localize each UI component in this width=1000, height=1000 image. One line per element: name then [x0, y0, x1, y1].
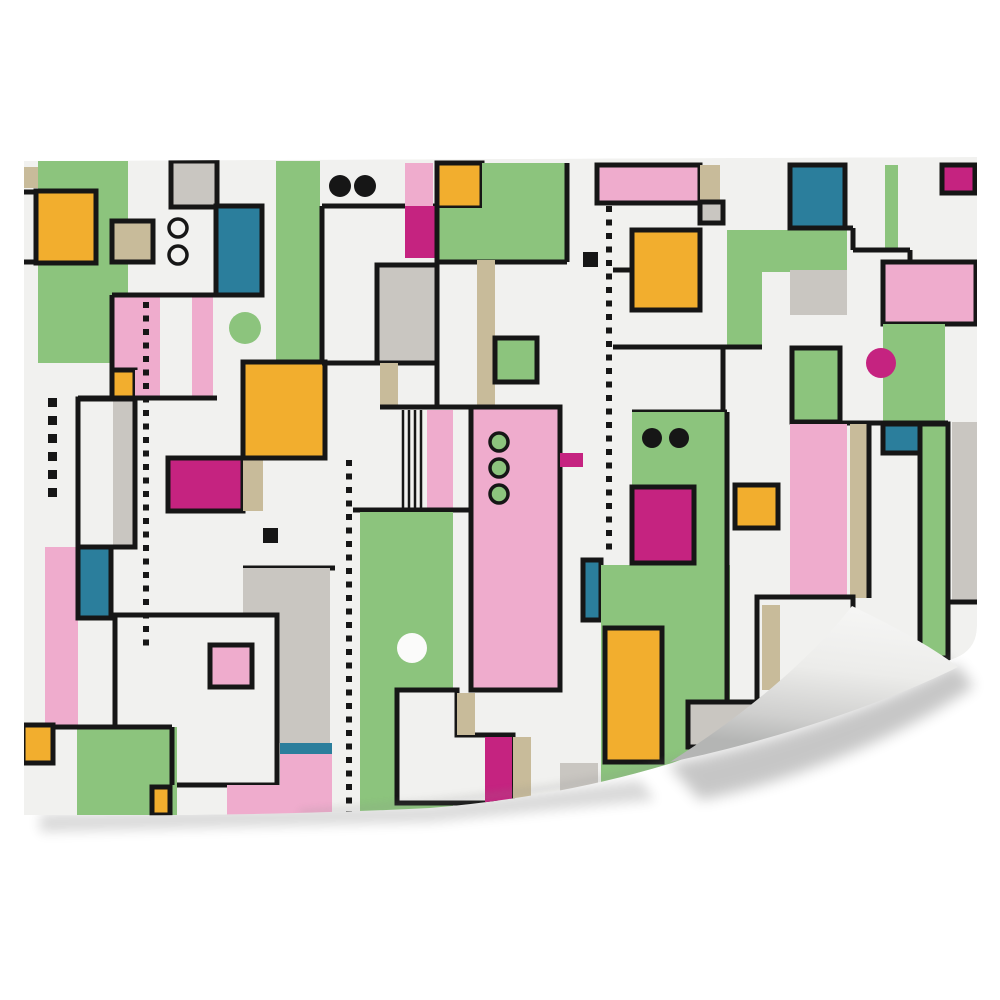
pattern-rect-orange	[23, 725, 53, 763]
pattern-circle-bg	[169, 246, 187, 264]
pattern-rect-pink	[427, 410, 453, 510]
pattern-rect-teal	[78, 547, 111, 618]
pattern-rect-gray	[171, 161, 217, 207]
pattern-rect-pink	[405, 163, 433, 206]
pattern-rect-magenta	[632, 487, 694, 563]
pattern-rect-orange	[437, 163, 482, 208]
pattern-rect-orange	[735, 485, 778, 528]
pattern-rect-tan	[850, 424, 867, 598]
pattern-rect-gray	[790, 270, 847, 315]
wallpaper-mockup-image	[0, 0, 1000, 1000]
pattern-black-square	[583, 252, 598, 267]
pattern-rect-gray	[952, 422, 977, 602]
pattern-rect-orange	[243, 362, 325, 458]
pattern-rect-tan	[457, 693, 475, 735]
pattern-circle-green	[490, 459, 508, 477]
pattern-rect-pink	[45, 547, 78, 727]
pattern-rect-tan	[477, 260, 495, 407]
pattern-rect-tan	[762, 605, 780, 690]
pattern-circle-black	[329, 175, 351, 197]
pattern-rect-teal	[883, 424, 922, 453]
pattern-black-square	[263, 528, 278, 543]
pattern-rect-gray	[113, 399, 135, 547]
pattern-rect-tan	[24, 167, 38, 188]
pattern-rect-gray	[700, 202, 723, 223]
pattern-rect-green	[727, 230, 847, 272]
pattern-rect-pink	[471, 407, 560, 690]
pattern-rect-teal	[280, 743, 332, 754]
pattern-rect-gray	[377, 265, 437, 363]
pattern-rect-pink	[790, 424, 847, 598]
pattern-rect-gray	[277, 615, 330, 743]
pattern-rect-magenta	[942, 165, 975, 193]
pattern-rect-tan	[112, 221, 153, 262]
pattern-rect-magenta	[560, 453, 583, 467]
pattern-circle-green	[490, 485, 508, 503]
pattern-rect-orange	[152, 787, 170, 815]
pattern-rect-green	[437, 208, 567, 262]
pattern-rect-pink	[210, 645, 252, 687]
pattern-rect-orange	[605, 628, 662, 762]
pattern-rect-tan	[380, 363, 398, 407]
pattern-circle-black	[642, 428, 662, 448]
pattern-rect-green	[920, 424, 948, 658]
pattern-circle-black	[669, 428, 689, 448]
pattern-rect-gray	[243, 568, 330, 615]
pattern-circle-bg	[169, 219, 187, 237]
pattern-rect-teal	[583, 560, 601, 620]
pattern-rect-pink	[280, 754, 332, 815]
pattern-rect-green	[276, 161, 320, 363]
pattern-rect-orange	[36, 191, 96, 263]
pattern-rect-pink	[227, 785, 280, 815]
pattern-rect-orange	[112, 370, 135, 398]
pattern-rect-teal	[216, 206, 262, 295]
pattern-rect-magenta	[405, 206, 435, 258]
pattern-rect-green	[885, 165, 898, 251]
pattern-circle-magenta	[866, 348, 896, 378]
pattern-rect-magenta	[168, 458, 243, 511]
pattern-rect-pink	[597, 165, 700, 203]
pattern-circle-black	[354, 175, 376, 197]
pattern-rect-green	[792, 348, 840, 422]
pattern-rect-pink	[112, 296, 160, 370]
mockup-svg	[0, 0, 1000, 1000]
pattern-rect-green	[727, 272, 762, 347]
pattern-circle-white	[397, 633, 427, 663]
pattern-rect-pink	[192, 296, 213, 398]
pattern-rect-green	[883, 324, 945, 425]
pattern-rect-orange	[632, 230, 700, 310]
pattern-rect-tan	[243, 458, 263, 511]
pattern-rect-tan	[700, 165, 720, 202]
pattern-rect-green	[482, 163, 567, 208]
pattern-rect-green	[495, 338, 537, 382]
pattern-rect-pink	[883, 262, 976, 324]
pattern-rect-teal	[790, 165, 845, 228]
pattern-circle-green	[490, 433, 508, 451]
pattern-circle-green	[229, 312, 261, 344]
